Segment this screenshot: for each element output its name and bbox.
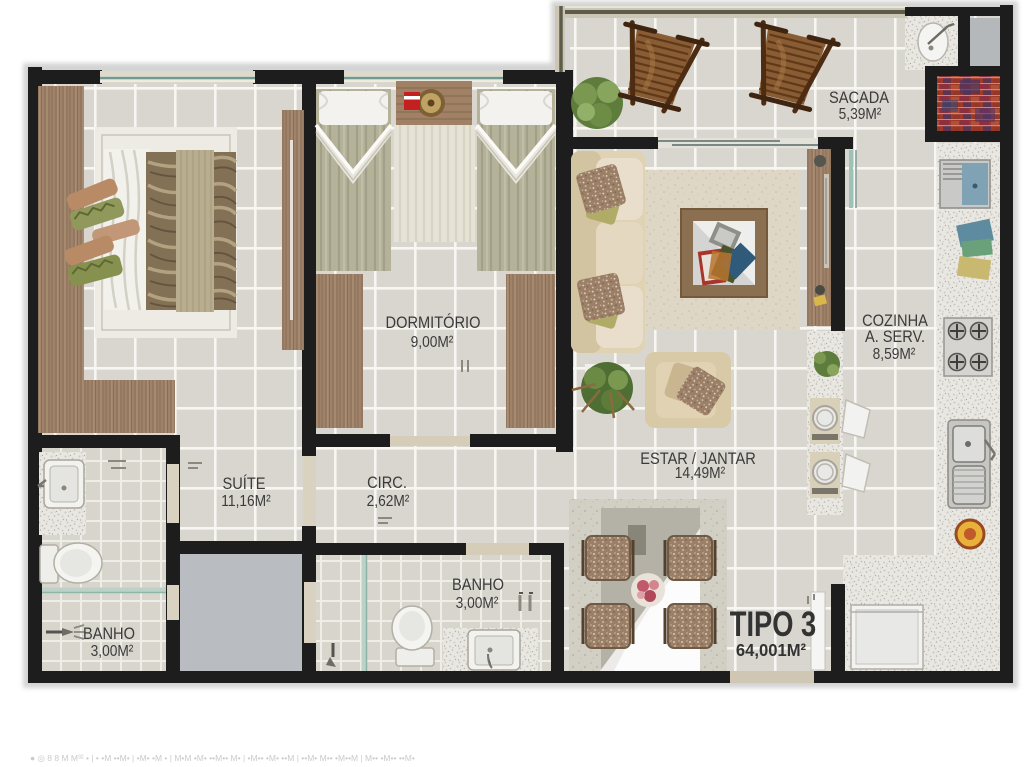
svg-text:SUÍTE: SUÍTE — [222, 473, 265, 493]
svg-text:A. SERV.: A. SERV. — [865, 328, 925, 346]
svg-text:14,49M²: 14,49M² — [675, 464, 725, 482]
svg-text:● ◎ 8 8 M M³² • | • •M ••M• |: ● ◎ 8 8 M M³² • | • •M ••M• | •M• •M • |… — [30, 753, 415, 763]
svg-text:2,62M²: 2,62M² — [367, 492, 410, 510]
svg-text:TIPO 3: TIPO 3 — [730, 605, 816, 644]
svg-text:64,001M²: 64,001M² — [736, 641, 806, 660]
svg-text:11,16M²: 11,16M² — [221, 492, 270, 510]
svg-text:BANHO: BANHO — [83, 625, 135, 643]
svg-text:8,59M²: 8,59M² — [873, 345, 916, 363]
svg-text:CIRC.: CIRC. — [367, 474, 407, 492]
svg-text:3,00M²: 3,00M² — [456, 594, 499, 612]
svg-text:DORMITÓRIO: DORMITÓRIO — [386, 312, 481, 332]
svg-text:9,00M²: 9,00M² — [411, 333, 454, 351]
svg-text:5,39M²: 5,39M² — [839, 105, 882, 123]
svg-text:BANHO: BANHO — [452, 576, 504, 594]
svg-text:3,00M²: 3,00M² — [91, 642, 134, 660]
